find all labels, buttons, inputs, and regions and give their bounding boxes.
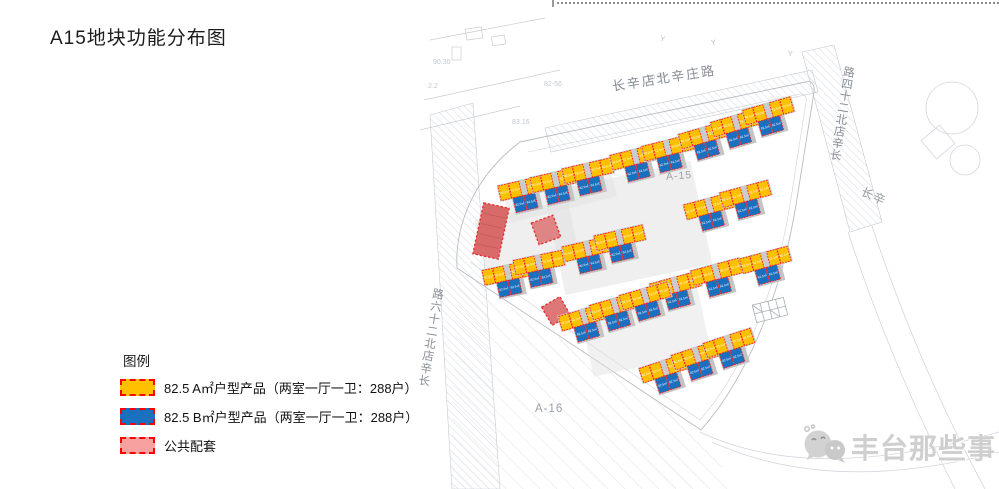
legend: 图例 82.5 A㎡户型产品（两室一厅一卫：288户） 82.5 B㎡户型产品（…	[120, 350, 418, 466]
watermark-icon	[796, 423, 851, 471]
legend-item-label: 82.5 B㎡户型产品（两室一厅一卫：288户）	[164, 407, 418, 426]
survey-mark: Y	[659, 34, 666, 44]
area-label-a15: A-15	[666, 169, 693, 183]
survey-mark: Y	[787, 49, 793, 58]
legend-swatch-unit-b	[120, 408, 155, 425]
legend-swatch-unit-a	[120, 379, 155, 396]
elevation-label: 2.2	[428, 83, 438, 90]
watermark: 丰台那些事	[796, 423, 996, 471]
top-dotted-line	[552, 2, 999, 4]
building-cluster: 82.5㎡82.5㎡82.5㎡82.5㎡82.5㎡82.5㎡	[738, 245, 797, 290]
legend-swatch-public	[120, 437, 155, 454]
utility-structure	[752, 297, 787, 322]
legend-item-unit-b: 82.5 B㎡户型产品（两室一厅一卫：288户）	[120, 408, 418, 425]
legend-item-unit-a: 82.5 A㎡户型产品（两室一厅一卫：288户）	[120, 379, 418, 396]
area-label-a16: A-16	[535, 403, 563, 415]
survey-mark: Y	[710, 38, 717, 48]
top-dotted-line-tick	[552, 0, 554, 7]
legend-item-label: 公共配套	[164, 436, 216, 455]
page-title: A15地块功能分布图	[50, 23, 227, 50]
elevation-label: 82-56	[544, 81, 562, 88]
slide: 82.5㎡82.5㎡82.5㎡82.5㎡82.5㎡82.5㎡82.5㎡82.5㎡…	[0, 0, 999, 489]
elevation-label: 90.30	[433, 59, 451, 66]
watermark-text: 丰台那些事	[851, 427, 996, 467]
legend-heading: 图例	[123, 350, 418, 370]
elevation-label: 83.16	[512, 119, 530, 126]
legend-item-label: 82.5 A㎡户型产品（两室一厅一卫：288户）	[164, 378, 418, 397]
legend-item-public: 公共配套	[120, 437, 418, 454]
